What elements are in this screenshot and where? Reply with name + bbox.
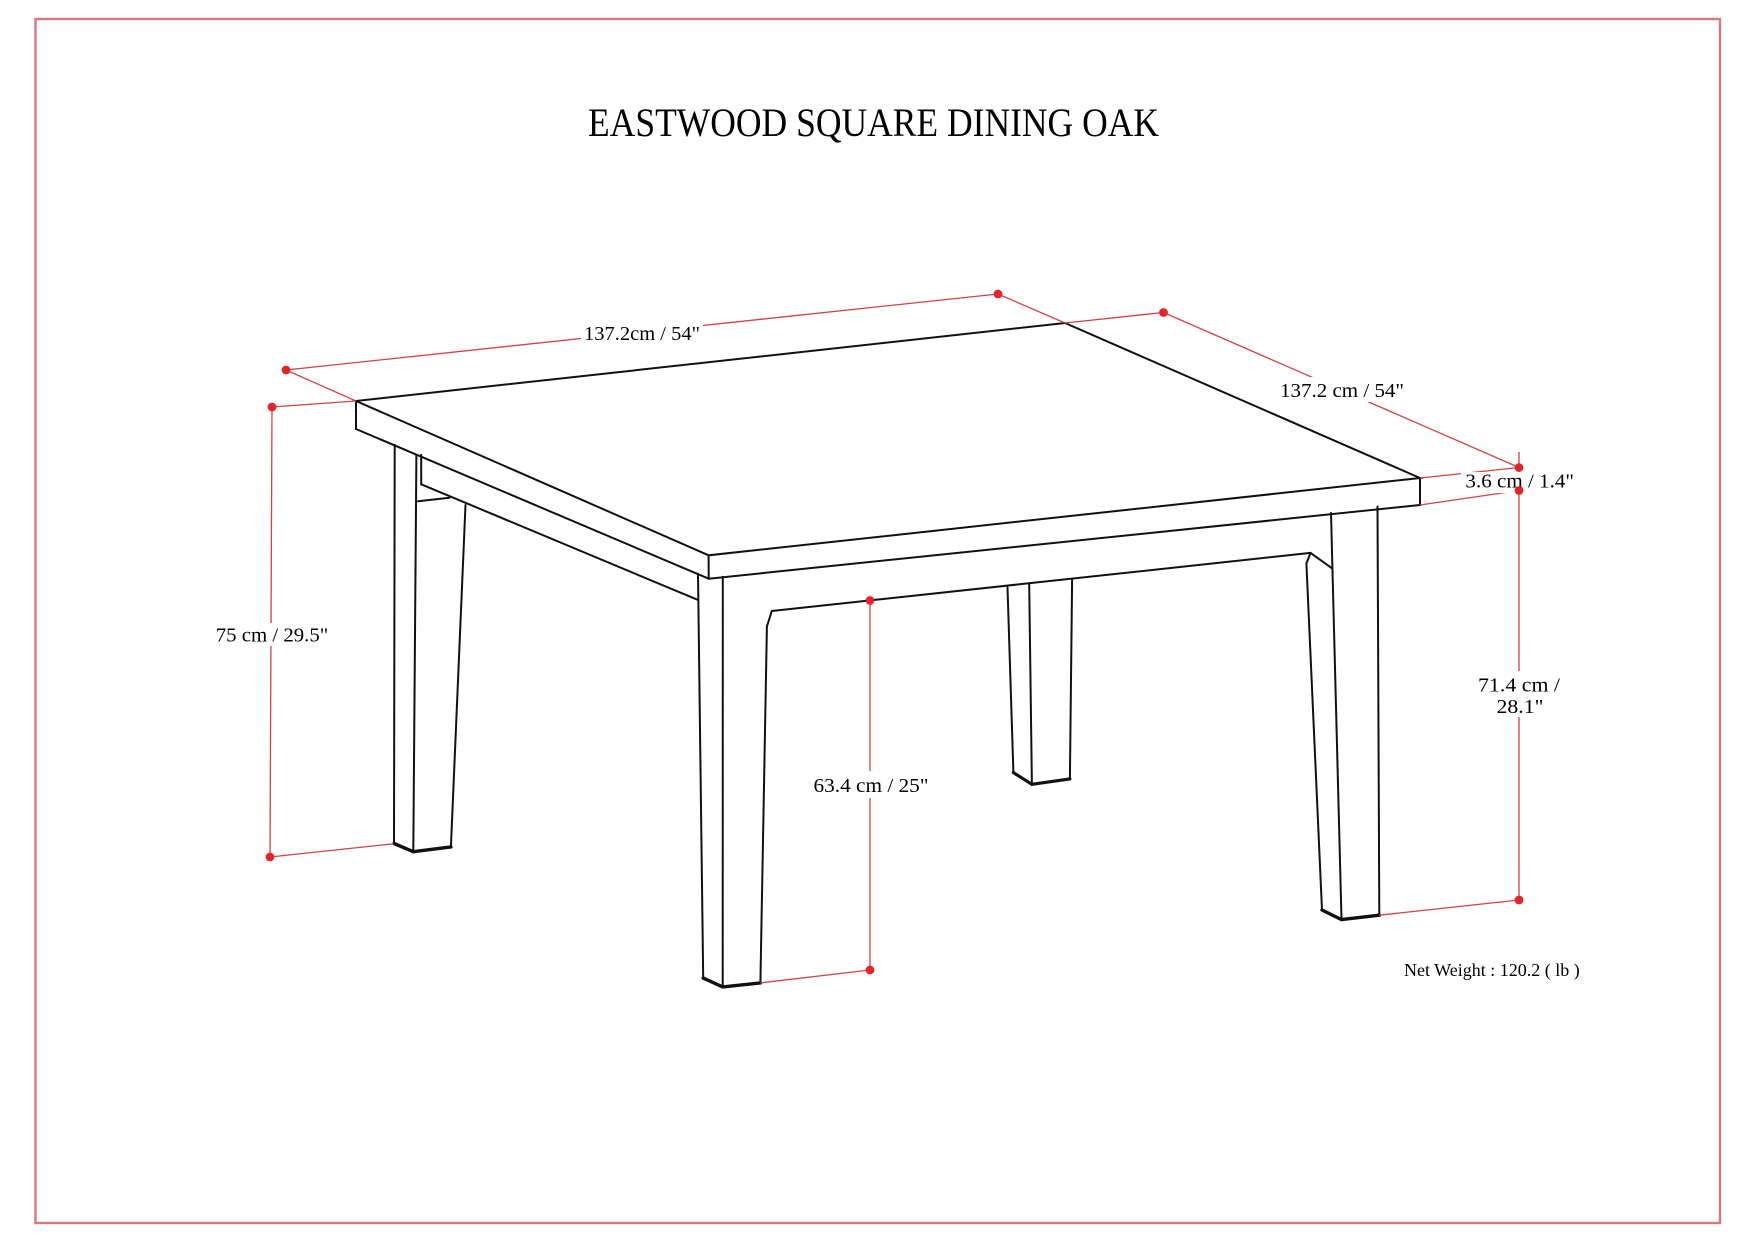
svg-text:28.1": 28.1" — [1497, 696, 1544, 718]
svg-text:Net Weight : 120.2 ( lb ): Net Weight : 120.2 ( lb ) — [1404, 960, 1580, 981]
svg-text:71.4 cm /: 71.4 cm / — [1478, 675, 1560, 697]
svg-text:137.2 cm / 54": 137.2 cm / 54" — [1280, 380, 1404, 402]
svg-text:137.2cm / 54": 137.2cm / 54" — [584, 323, 700, 345]
svg-text:75 cm / 29.5": 75 cm / 29.5" — [216, 625, 329, 647]
svg-text:63.4 cm / 25": 63.4 cm / 25" — [814, 775, 929, 797]
svg-text:EASTWOOD SQUARE DINING OAK: EASTWOOD SQUARE DINING OAK — [588, 100, 1159, 145]
